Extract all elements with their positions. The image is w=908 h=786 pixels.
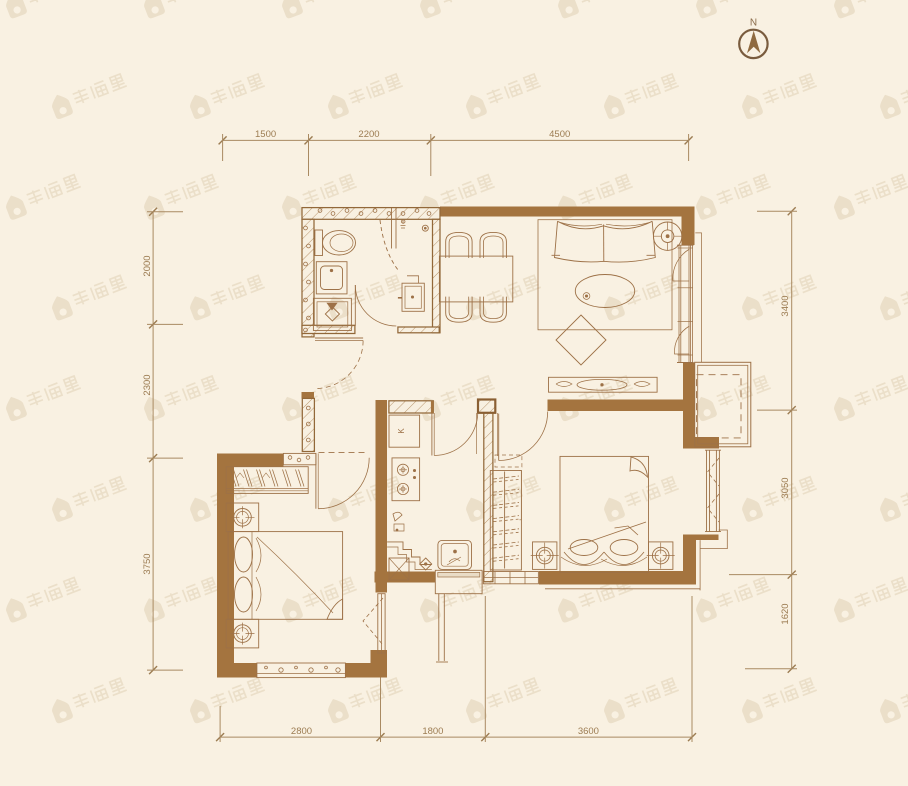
- svg-text:3600: 3600: [578, 726, 599, 737]
- svg-text:2000: 2000: [142, 255, 153, 276]
- svg-text:N: N: [750, 18, 757, 29]
- svg-text:1620: 1620: [780, 603, 791, 624]
- svg-text:2800: 2800: [291, 726, 312, 737]
- svg-text:3050: 3050: [780, 477, 791, 498]
- svg-text:1800: 1800: [422, 726, 443, 737]
- svg-text:2200: 2200: [358, 129, 379, 140]
- svg-text:4500: 4500: [549, 129, 570, 140]
- svg-text:2300: 2300: [142, 374, 153, 395]
- svg-text:K: K: [397, 428, 406, 434]
- svg-text:3750: 3750: [142, 553, 153, 574]
- svg-text:3400: 3400: [780, 295, 791, 316]
- svg-text:1500: 1500: [255, 129, 276, 140]
